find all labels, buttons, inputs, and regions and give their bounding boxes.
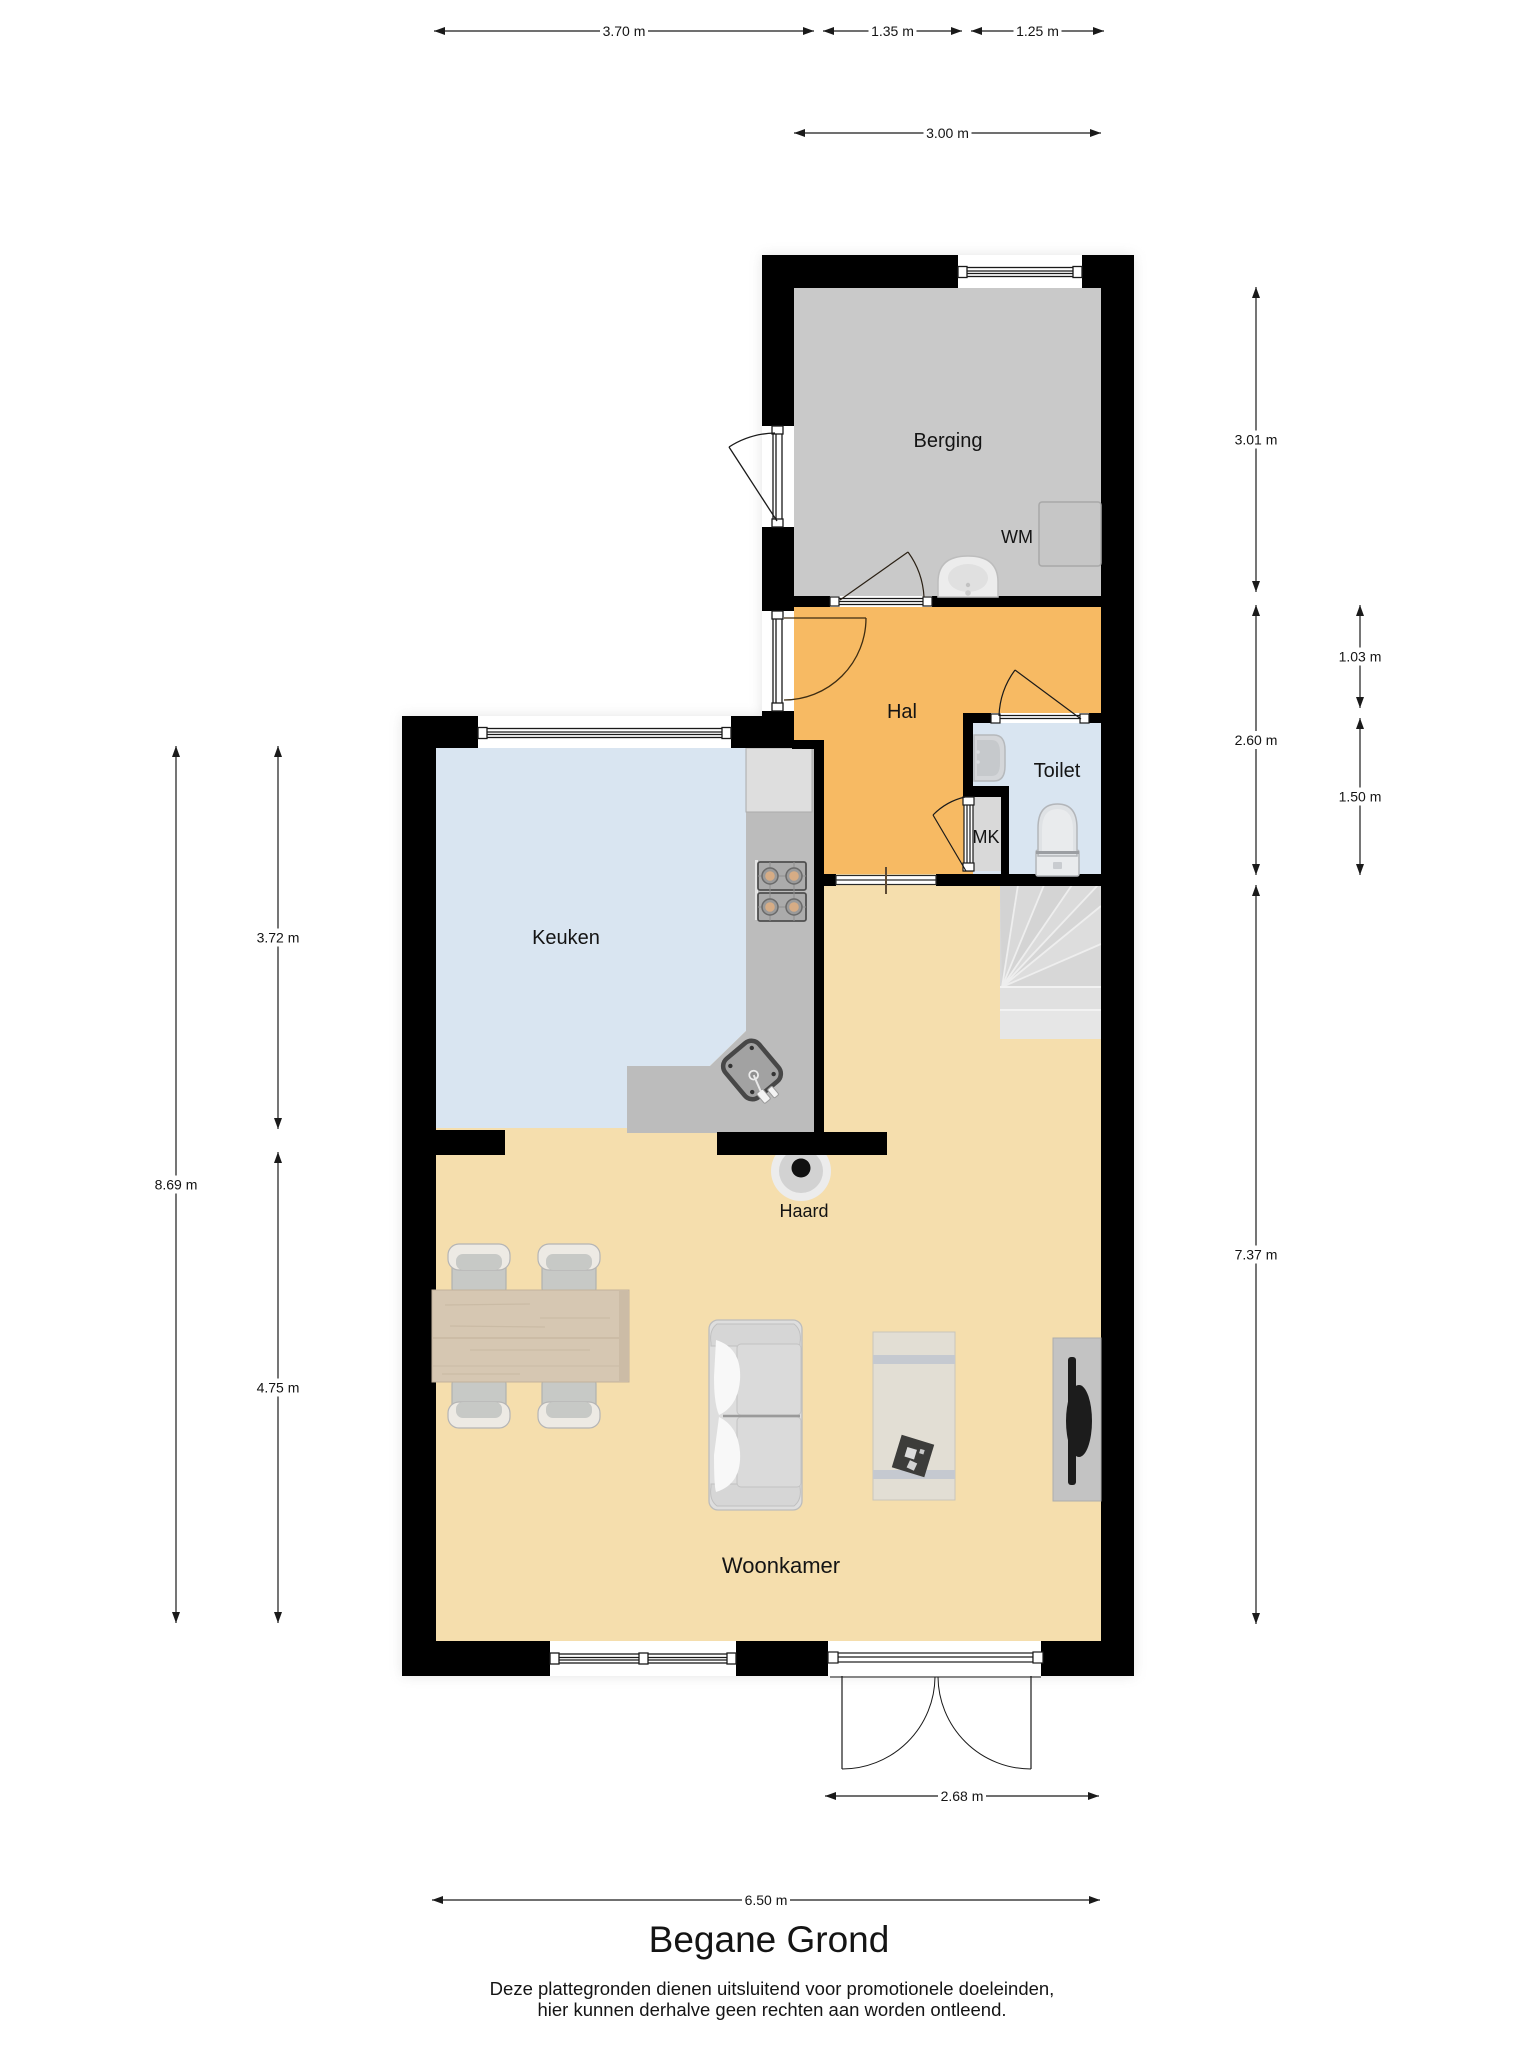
svg-text:3.70 m: 3.70 m [603,23,646,39]
svg-text:1.25 m: 1.25 m [1016,23,1059,39]
svg-text:2.60 m: 2.60 m [1235,732,1278,748]
svg-text:hier kunnen derhalve geen rech: hier kunnen derhalve geen rechten aan wo… [537,1999,1006,2020]
svg-text:WM: WM [1001,527,1033,547]
svg-text:Keuken: Keuken [532,927,600,949]
svg-text:6.50 m: 6.50 m [745,1892,788,1908]
svg-text:Haard: Haard [779,1201,828,1221]
svg-text:3.00 m: 3.00 m [926,125,969,141]
svg-text:4.75 m: 4.75 m [257,1380,300,1396]
svg-text:2.68 m: 2.68 m [941,1788,984,1804]
svg-text:Hal: Hal [887,701,917,723]
svg-text:3.01 m: 3.01 m [1235,432,1278,448]
svg-text:3.72 m: 3.72 m [257,930,300,946]
svg-text:Woonkamer: Woonkamer [722,1553,840,1578]
svg-text:MK: MK [973,827,1000,847]
svg-text:Toilet: Toilet [1034,760,1081,782]
svg-text:1.35 m: 1.35 m [871,23,914,39]
svg-text:Deze plattegronden dienen uits: Deze plattegronden dienen uitsluitend vo… [490,1978,1055,1999]
svg-text:Begane Grond: Begane Grond [649,1919,890,1960]
svg-text:7.37 m: 7.37 m [1235,1247,1278,1263]
svg-text:1.03 m: 1.03 m [1339,649,1382,665]
svg-text:Berging: Berging [914,430,983,452]
svg-text:8.69 m: 8.69 m [155,1177,198,1193]
svg-text:1.50 m: 1.50 m [1339,789,1382,805]
